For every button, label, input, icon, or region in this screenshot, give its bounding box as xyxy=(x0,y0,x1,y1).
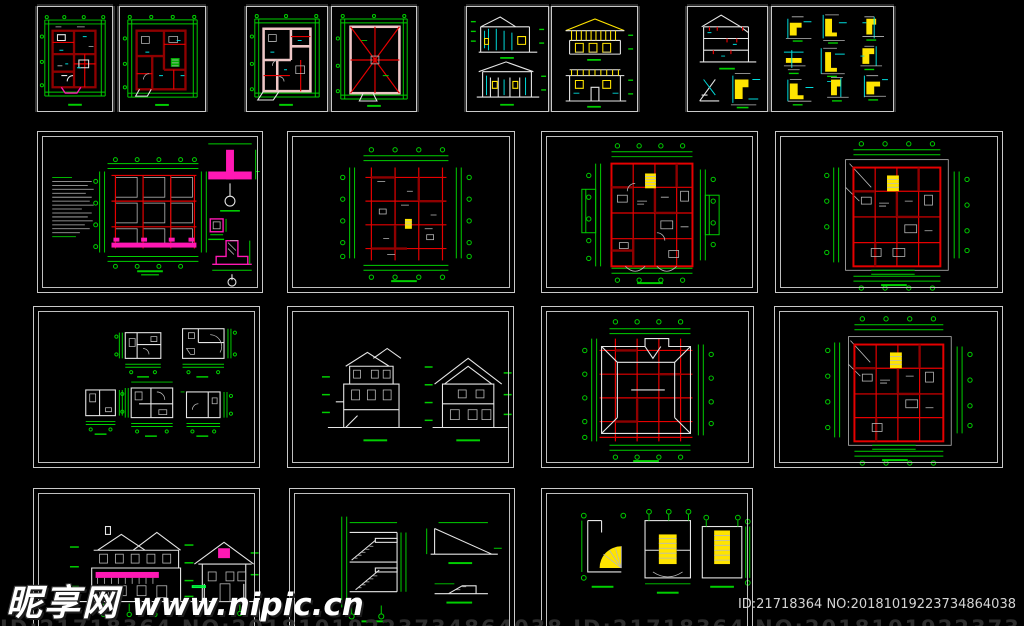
image-id-text: ID:21718364 NO:20181019223734864038 xyxy=(738,597,1016,612)
stair-plans-drawing xyxy=(542,489,752,626)
sheet-floor-plan-pink xyxy=(246,6,328,112)
section-left xyxy=(322,348,433,441)
bath-plan xyxy=(86,390,123,435)
fixtures xyxy=(617,183,688,271)
floor-plan-drawing xyxy=(775,307,1002,467)
ramp-detail xyxy=(427,523,502,564)
detail-cluster xyxy=(821,48,845,77)
sheet-bathroom-details xyxy=(33,306,260,468)
section-drawing xyxy=(688,7,767,111)
detail-cluster xyxy=(862,17,884,41)
column-detail xyxy=(208,219,226,240)
sheet-ground-floor-plan xyxy=(541,131,758,293)
sheet-floor-plan-darkred-2 xyxy=(119,6,206,112)
foundation-t-detail xyxy=(208,144,259,212)
watermark-site-name: 昵享网 xyxy=(6,574,120,626)
detail-cluster xyxy=(823,15,847,44)
floor-plan-drawing xyxy=(120,7,205,111)
details-grid-drawing xyxy=(772,7,893,111)
elevation-2 xyxy=(477,62,546,97)
bath-plan xyxy=(115,333,161,378)
detail-cluster xyxy=(827,78,849,102)
balconies xyxy=(582,189,719,234)
step-detail xyxy=(435,584,488,604)
roof-plan-drawing xyxy=(332,7,416,111)
detail-cluster xyxy=(860,46,882,70)
cad-drawing-collage: 昵享网 www.nipic.cn ID:21718364 NO:20181019… xyxy=(0,0,1024,626)
detail-cluster xyxy=(864,76,888,101)
stair-plan-2 xyxy=(645,509,691,593)
elevation-pair-drawing xyxy=(467,7,548,111)
elevation-pair-drawing xyxy=(552,7,637,111)
sheet-second-floor-plan xyxy=(775,131,1003,293)
bath-plan xyxy=(181,392,233,437)
sections-drawing xyxy=(288,307,513,467)
sheet-elevations-yellow xyxy=(551,6,638,112)
dimension-lines xyxy=(94,158,207,269)
roof-plan-drawing xyxy=(542,307,753,467)
floor-plan-drawing xyxy=(542,132,757,292)
elevation-1 xyxy=(471,17,544,52)
sheet-building-sections xyxy=(287,306,514,468)
elevation-1 xyxy=(566,19,633,54)
dimension-lines xyxy=(250,15,319,98)
detail-cluster xyxy=(788,80,814,106)
building-section xyxy=(700,15,757,62)
sheet-roof-plan-small xyxy=(331,6,417,112)
sheet-elevations-cyan xyxy=(466,6,549,112)
bath-plan xyxy=(121,382,173,437)
foundation-plan-drawing xyxy=(38,132,262,292)
stair-plan-3 xyxy=(702,515,750,587)
sheet-floor-plan-darkred-1 xyxy=(37,6,113,112)
floor-plan-drawing xyxy=(776,132,1002,292)
framing-plan-drawing xyxy=(288,132,514,292)
sheet-roof-framing-plan xyxy=(541,306,754,468)
floor-plan-drawing xyxy=(38,7,112,111)
floor-plan-drawing xyxy=(247,7,327,111)
footing-grid xyxy=(115,177,192,244)
sheet-framing-plan xyxy=(287,131,515,293)
sheet-section-details xyxy=(687,6,768,112)
sheet-foundation-plan xyxy=(37,131,263,293)
watermark: 昵享网 www.nipic.cn xyxy=(6,574,364,626)
sheet-stair-plans xyxy=(541,488,753,626)
section-right xyxy=(433,358,512,441)
bathroom-plans-drawing xyxy=(34,307,259,467)
detail-cluster xyxy=(786,17,812,42)
notes-text-block xyxy=(52,181,93,232)
sheet-construction-details xyxy=(771,6,894,112)
eave-details xyxy=(700,74,760,105)
stair-plan-1 xyxy=(581,513,625,587)
sheet-upper-floor-plan xyxy=(774,306,1003,468)
detail-cluster xyxy=(784,50,806,74)
elevation-2 xyxy=(566,70,633,101)
dimension-lines xyxy=(341,148,472,280)
footing-section-detail xyxy=(212,241,252,286)
watermark-site-url: www.nipic.cn xyxy=(132,587,364,623)
bath-plan xyxy=(183,329,237,378)
